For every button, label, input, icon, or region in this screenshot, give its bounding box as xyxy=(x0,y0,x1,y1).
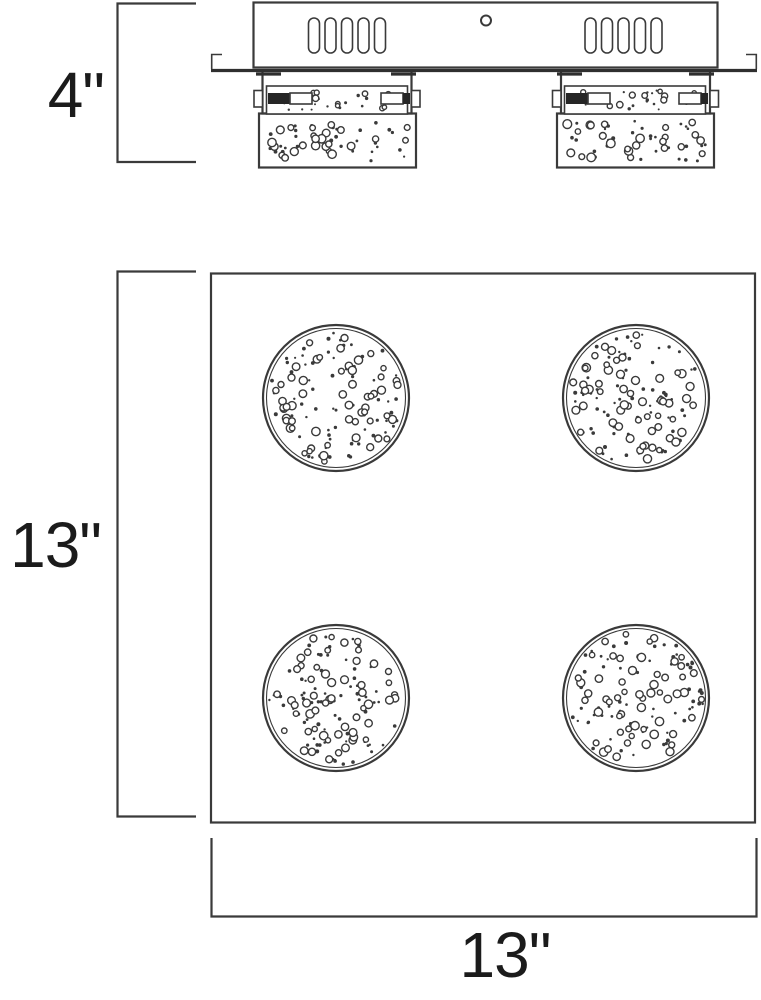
latch-slot-right-inner xyxy=(679,93,701,104)
canopy-housing xyxy=(254,3,718,68)
dimension-side-height: 4" xyxy=(48,4,196,163)
latch-black-left-inner xyxy=(403,93,410,104)
dimension-bracket-side-height xyxy=(118,4,197,163)
latch-slot-right xyxy=(588,93,610,104)
ceiling-trim-hook-left xyxy=(212,55,222,70)
latch-black-right-inner xyxy=(701,93,708,104)
spring-clip-tab xyxy=(553,91,562,108)
drawing-svg: 4" 13" 13" xyxy=(0,0,761,1000)
diffuser-circle-top-right xyxy=(563,325,709,471)
spring-clip-tab xyxy=(710,91,719,108)
dimension-bracket-plan-height xyxy=(118,272,197,817)
spring-clip-tab xyxy=(254,91,263,108)
dimension-label-plan-height: 13" xyxy=(10,509,101,581)
diffuser-circle-bottom-right xyxy=(563,625,709,771)
ceiling-trim-hook-right xyxy=(746,55,756,70)
dimension-plan-height: 13" xyxy=(10,272,196,817)
dimension-label-side-height: 4" xyxy=(48,59,104,131)
spring-clip-tab xyxy=(412,91,421,108)
dimension-label-plan-width: 13" xyxy=(460,919,551,991)
diffuser-circle-bottom-left xyxy=(263,625,409,771)
dimension-bracket-plan-width xyxy=(212,838,757,917)
side-view xyxy=(211,3,757,168)
latch-black-left xyxy=(268,93,290,104)
latch-black-right xyxy=(566,93,588,104)
latch-slot-left-inner xyxy=(381,93,403,104)
fixture-dimension-drawing: 4" 13" 13" xyxy=(0,0,761,1000)
dimension-plan-width: 13" xyxy=(212,838,757,991)
latch-slot-left xyxy=(290,93,312,104)
bottom-view xyxy=(211,274,755,823)
diffuser-circle-top-left xyxy=(263,325,409,471)
